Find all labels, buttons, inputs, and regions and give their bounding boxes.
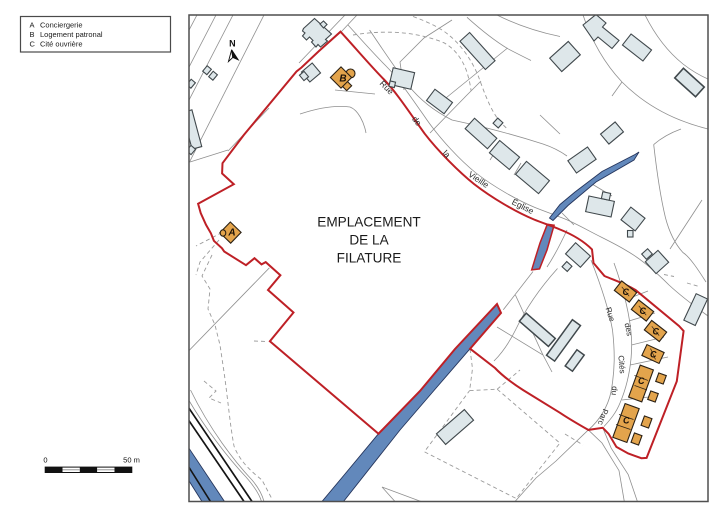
- svg-text:Conciergerie: Conciergerie: [40, 21, 83, 30]
- svg-text:C: C: [640, 306, 647, 316]
- svg-text:FILATURE: FILATURE: [337, 251, 402, 266]
- svg-text:du: du: [610, 386, 620, 396]
- svg-text:C: C: [623, 287, 630, 297]
- svg-text:C: C: [30, 40, 36, 49]
- svg-text:EMPLACEMENT: EMPLACEMENT: [317, 215, 420, 230]
- svg-text:B: B: [339, 73, 346, 84]
- svg-text:Cités: Cités: [616, 355, 627, 374]
- svg-text:C: C: [653, 327, 660, 337]
- svg-text:B: B: [30, 30, 35, 39]
- svg-text:Cité ouvrière: Cité ouvrière: [40, 40, 83, 49]
- svg-text:DE LA: DE LA: [349, 233, 389, 248]
- svg-text:Logement patronal: Logement patronal: [40, 30, 103, 39]
- svg-text:N: N: [229, 39, 236, 49]
- svg-text:C: C: [650, 350, 657, 360]
- svg-text:C: C: [638, 376, 645, 386]
- svg-text:C: C: [623, 416, 630, 426]
- svg-text:0: 0: [43, 456, 47, 465]
- svg-text:A: A: [30, 21, 35, 30]
- svg-text:A: A: [227, 227, 235, 238]
- svg-text:50 m: 50 m: [123, 456, 140, 465]
